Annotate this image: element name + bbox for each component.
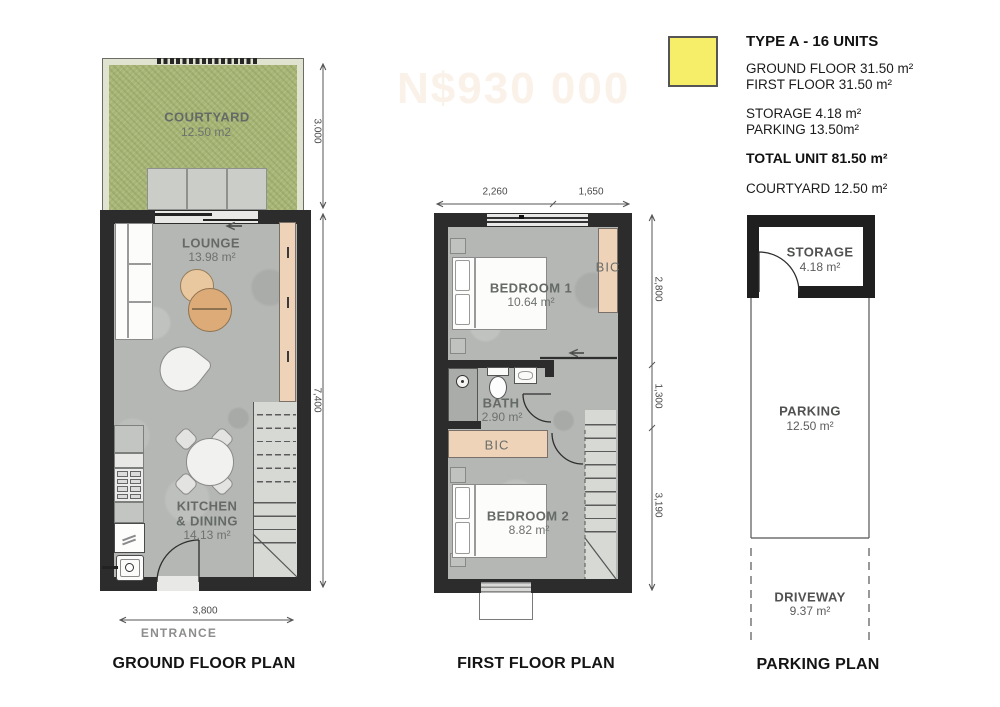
glazed-sliding-panel <box>279 222 296 402</box>
bedside-table <box>450 238 466 254</box>
bedside-table <box>450 467 466 483</box>
parking-plan-title: PARKING PLAN <box>757 656 880 674</box>
parking-label: PARKING <box>779 404 841 419</box>
basin <box>514 367 537 384</box>
legend-title: TYPE A - 16 UNITS <box>746 33 878 50</box>
bedroom1-area: 10.64 m² <box>507 295 554 309</box>
bedside-table <box>450 338 466 354</box>
bedroom2-label: BEDROOM 2 <box>487 509 569 524</box>
floor-plan-sheet: N$930 000 COURTYARD 12.50 m2 <box>0 0 1000 707</box>
shower <box>448 368 478 422</box>
toilet-cistern <box>487 367 509 376</box>
storage-label: STORAGE <box>787 245 854 260</box>
sink <box>116 555 144 581</box>
hob <box>114 468 144 502</box>
dim-gf-depth: 7,400 <box>312 387 323 412</box>
legend-swatch <box>668 36 718 87</box>
legend-courtyard: COURTYARD 12.50 m² <box>746 181 887 196</box>
lounge-area: 13.98 m² <box>188 250 235 264</box>
kitchen-counter <box>114 453 144 468</box>
entrance-opening <box>157 576 199 591</box>
legend-storage: STORAGE 4.18 m² <box>746 106 861 121</box>
price-watermark: N$930 000 <box>397 64 630 114</box>
paver <box>227 168 267 210</box>
bath-area: 2.90 m² <box>482 410 523 424</box>
dim-courtyard-depth: 3.000 <box>312 118 323 143</box>
legend-parking: PARKING 13.50m² <box>746 122 859 137</box>
legend-total: TOTAL UNIT 81.50 m² <box>746 150 888 166</box>
storage-door-opening <box>759 286 798 298</box>
bath-wall-stub <box>545 360 554 377</box>
driveway-area: 9.37 m² <box>790 604 831 618</box>
dim-ff-top-left: 2,260 <box>482 187 507 198</box>
courtyard-label: COURTYARD <box>164 110 249 125</box>
sliding-door-panel <box>203 219 258 222</box>
driveway-label: DRIVEWAY <box>774 590 845 605</box>
first-floor-plan-title: FIRST FLOOR PLAN <box>457 655 615 673</box>
coffee-table <box>188 288 232 332</box>
parking-area: 12.50 m² <box>786 419 833 433</box>
courtyard-area: 12.50 m2 <box>181 125 231 139</box>
bic-upper-label: BIC <box>596 260 621 275</box>
courtyard-fence <box>157 58 259 64</box>
dining-table <box>186 438 234 486</box>
legend-first-floor: FIRST FLOOR 31.50 m² <box>746 77 892 92</box>
dim-gf-width: 3,800 <box>192 606 217 617</box>
lounge-label: LOUNGE <box>182 236 240 251</box>
fridge <box>114 523 145 553</box>
gf-stairs <box>253 402 297 577</box>
bedroom1-label: BEDROOM 1 <box>490 281 572 296</box>
kitchen-area: 14.13 m² <box>183 528 230 542</box>
ff-window-box <box>479 593 533 620</box>
paver <box>147 168 187 210</box>
sink-tap <box>102 566 118 569</box>
bic-lower-label: BIC <box>485 438 510 453</box>
sofa <box>115 223 153 340</box>
dim-ff-right-bottom: 3,190 <box>653 492 664 517</box>
bath-label: BATH <box>483 396 520 411</box>
storage-area: 4.18 m² <box>800 260 841 274</box>
bath-wall <box>434 421 481 429</box>
bedroom2-area: 8.82 m² <box>509 523 550 537</box>
kitchen-counter <box>114 502 144 523</box>
paver <box>187 168 227 210</box>
ff-bottom-window <box>481 582 531 593</box>
ground-floor-plan-title: GROUND FLOOR PLAN <box>113 655 296 673</box>
dim-ff-top-right: 1,650 <box>578 187 603 198</box>
kitchen-label-2: & DINING <box>176 514 238 529</box>
window <box>487 214 588 226</box>
dim-ff-right-mid: 1,300 <box>653 383 664 408</box>
dim-ff-right-top: 2,800 <box>653 276 664 301</box>
entrance-label: ENTRANCE <box>141 626 217 640</box>
ff-stairs <box>585 410 616 579</box>
kitchen-label-1: KITCHEN <box>177 499 238 514</box>
sliding-door-panel <box>155 213 212 216</box>
kitchen-counter <box>114 425 144 453</box>
legend-ground-floor: GROUND FLOOR 31.50 m² <box>746 61 913 76</box>
